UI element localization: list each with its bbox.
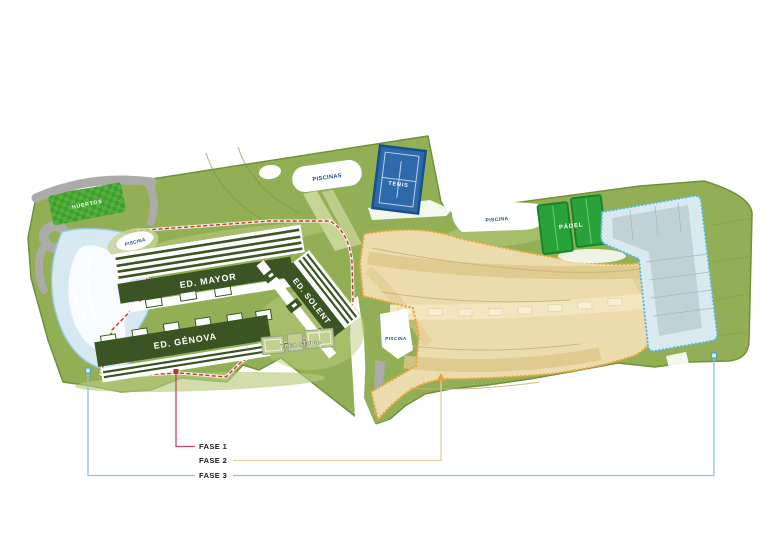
fase1-marker bbox=[174, 369, 179, 374]
fase3-marker-right bbox=[712, 353, 717, 358]
legend-fase3-label: FASE 3 bbox=[199, 471, 227, 480]
site-plan-svg: HUERTOS PISCINAS TENIS PI bbox=[0, 0, 770, 535]
legend-fase1-label: FASE 1 bbox=[199, 442, 227, 451]
legend-fase2-label: FASE 2 bbox=[199, 456, 227, 465]
fase3-marker-left bbox=[86, 368, 91, 373]
piscina-central-label: PISCINA bbox=[385, 336, 407, 341]
site-plan-map: HUERTOS PISCINAS TENIS PI bbox=[0, 0, 770, 535]
